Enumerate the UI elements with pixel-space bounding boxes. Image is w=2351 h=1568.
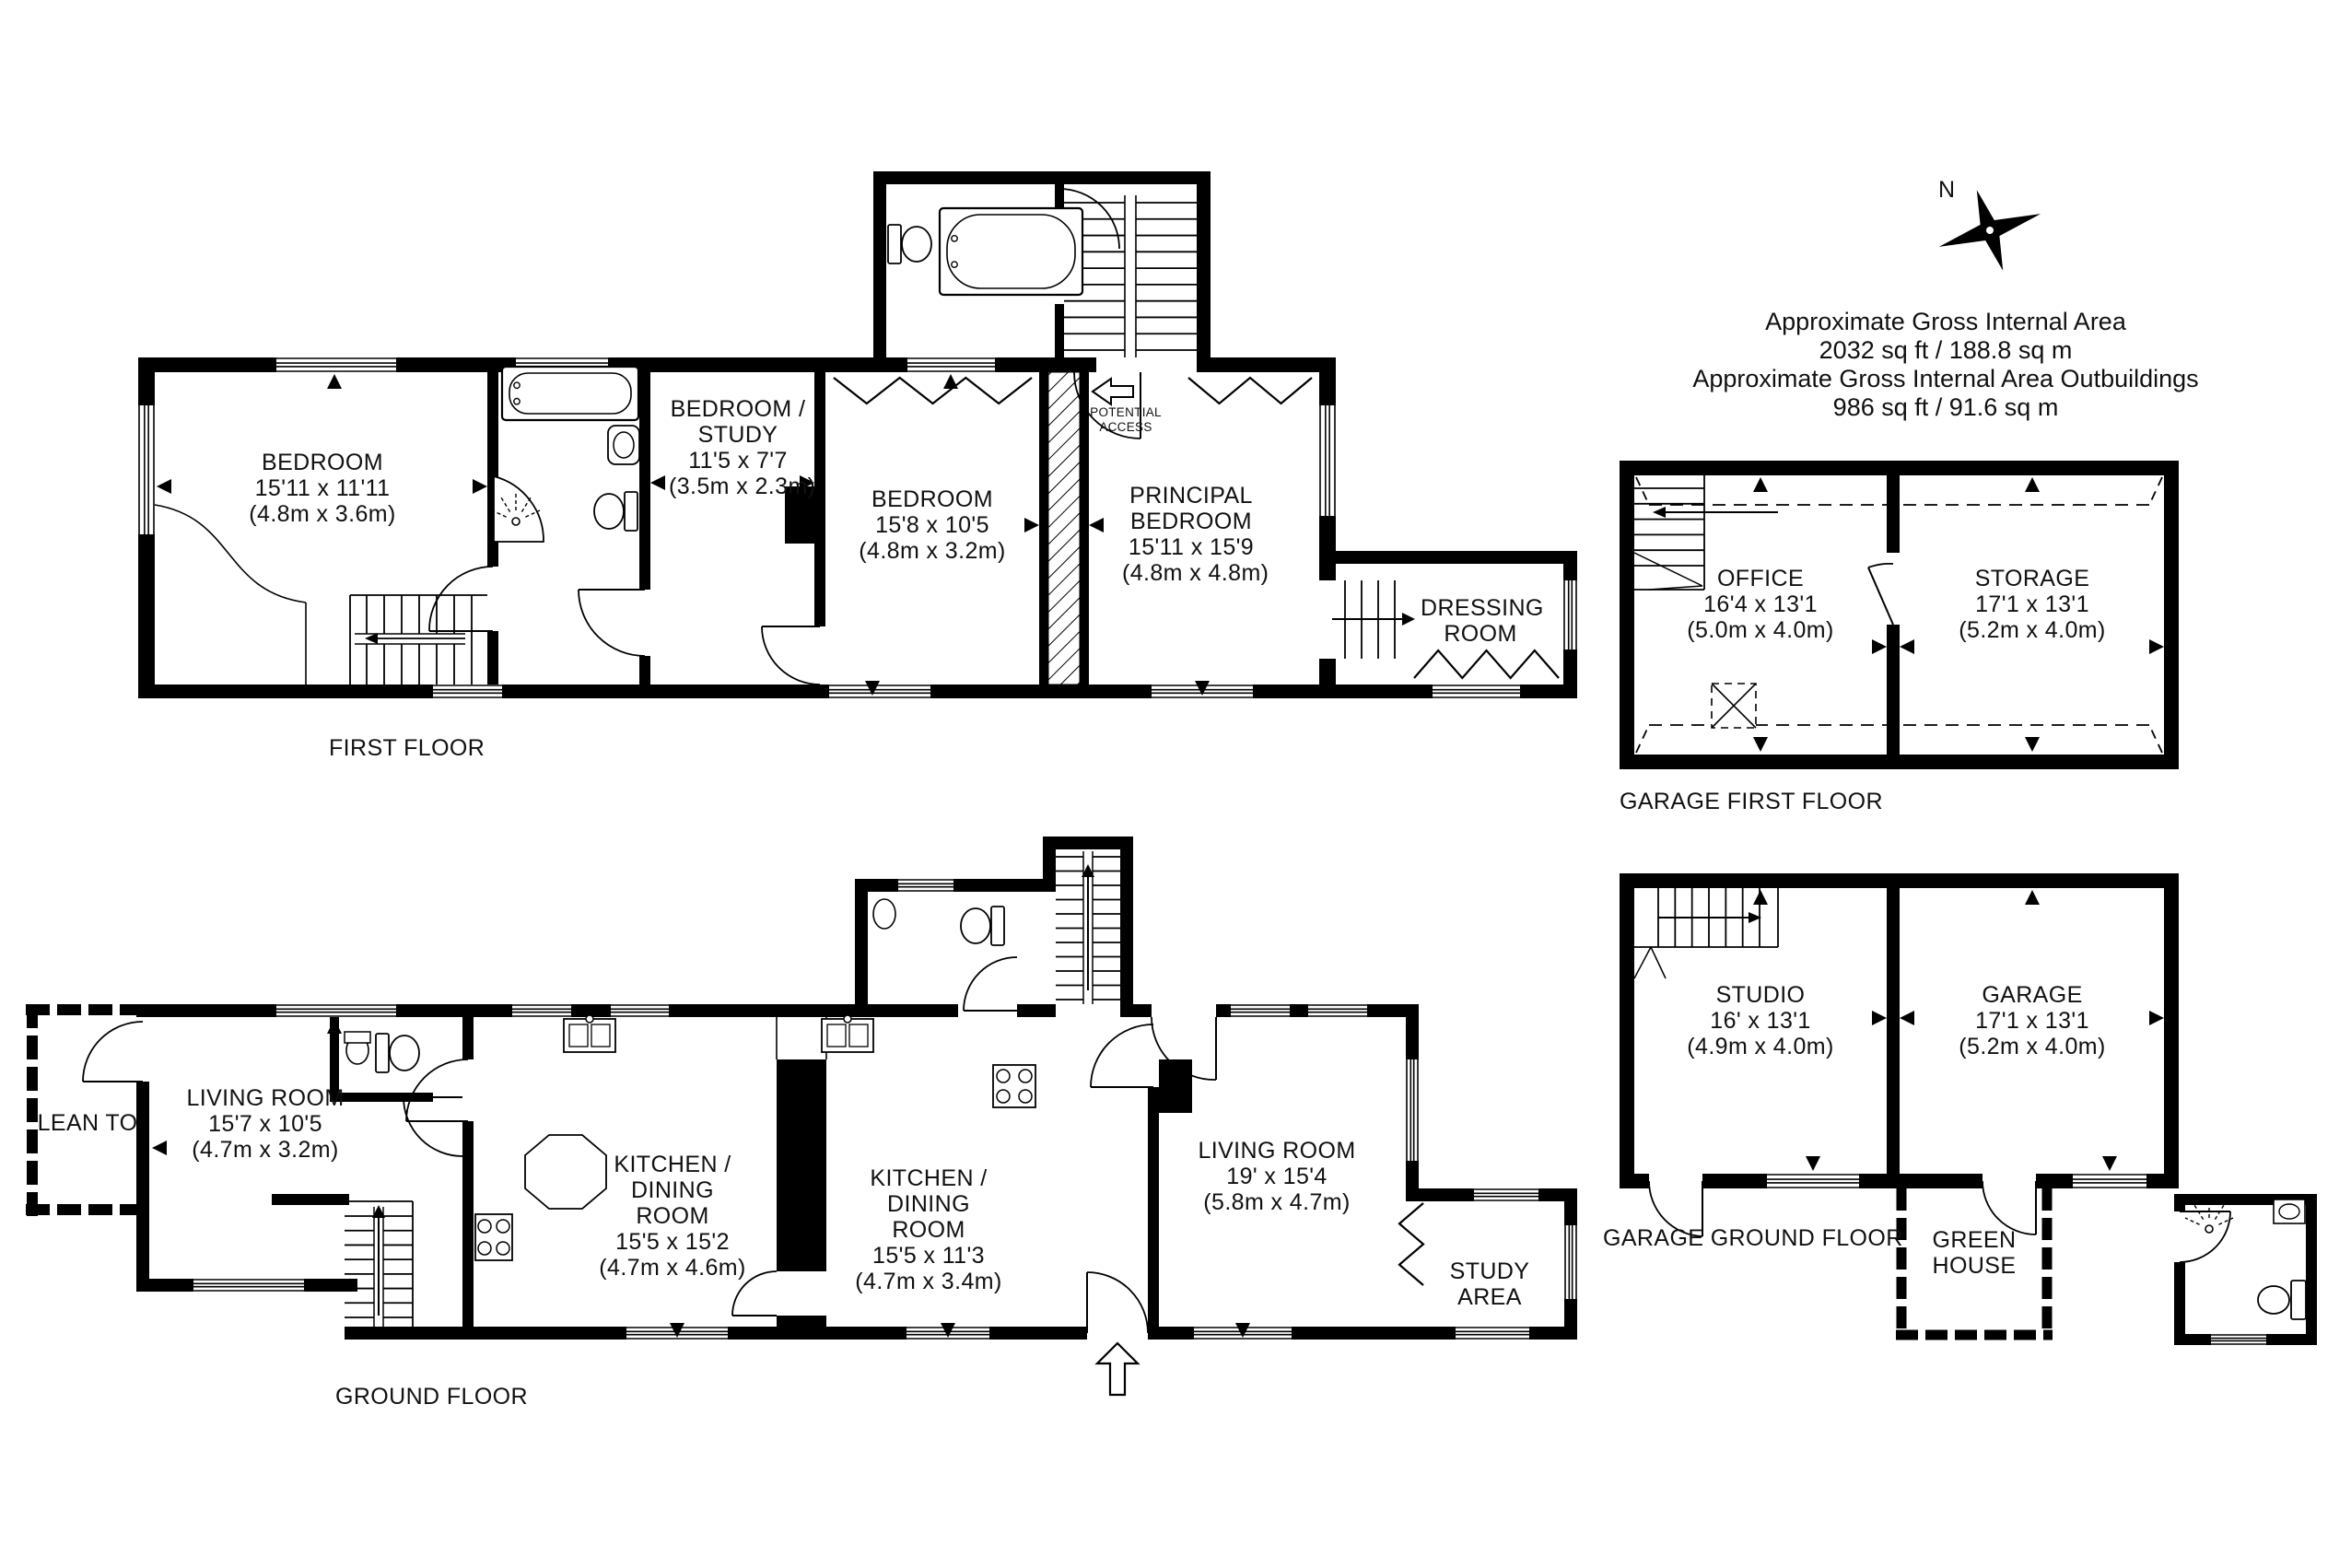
ground-floor-stairs: [345, 1201, 413, 1327]
room-label-kitchen-dining-2: KITCHEN / DINING ROOM 15'5 x 11'3 (4.7m …: [848, 1165, 1010, 1294]
room-label-living-room-2: LIVING ROOM 19' x 15'4 (5.8m x 4.7m): [1185, 1138, 1369, 1215]
room-label-storage: STORAGE 17'1 x 13'1 (5.2m x 4.0m): [1940, 566, 2124, 643]
ground-floor-wc: [345, 1032, 419, 1072]
area-summary: Approximate Gross Internal Area 2032 sq …: [1692, 308, 2198, 422]
area-line: 2032 sq ft / 188.8 sq m: [1692, 336, 2198, 365]
floorplan-page: N Approximate Gross Internal Area 2032 s…: [0, 0, 2351, 1568]
room-label-lean-to: LEAN TO: [32, 1110, 143, 1136]
room-label-bedroom-study: BEDROOM / STUDY 11'5 x 7'7 (3.5m x 2.3m): [669, 396, 807, 499]
first-floor-stairs: [350, 595, 487, 685]
area-line: Approximate Gross Internal Area: [1692, 308, 2198, 336]
caption-garage-first-floor: GARAGE FIRST FLOOR: [1620, 789, 1883, 815]
floorplan-drawing: [0, 0, 2351, 1568]
ground-floor-stair-block: [855, 837, 1133, 1017]
wc-outbuilding-plan: [2174, 1194, 2317, 1346]
caption-first-floor: FIRST FLOOR: [329, 735, 485, 762]
area-line: Approximate Gross Internal Area Outbuild…: [1692, 365, 2198, 393]
room-label-principal-bedroom: PRINCIPAL BEDROOM 15'11 x 15'9 (4.8m x 4…: [1122, 483, 1260, 586]
room-label-study-area: STUDY AREA: [1448, 1258, 1531, 1310]
room-label-office: OFFICE 16'4 x 13'1 (5.0m x 4.0m): [1668, 566, 1853, 643]
compass-north-label: N: [1938, 177, 1955, 204]
room-label-kitchen-dining-1: KITCHEN / DINING ROOM 15'5 x 15'2 (4.7m …: [592, 1152, 754, 1281]
room-label-dressing-room: DRESSING ROOM: [1421, 595, 1540, 647]
room-label-bedroom-1: BEDROOM 15'11 x 11'11 (4.8m x 3.6m): [221, 450, 424, 527]
room-label-bedroom-2: BEDROOM 15'8 x 10'5 (4.8m x 3.2m): [840, 486, 1024, 564]
area-line: 986 sq ft / 91.6 sq m: [1692, 393, 2198, 422]
caption-ground-floor: GROUND FLOOR: [335, 1384, 528, 1410]
room-label-green-house: GREEN HOUSE: [1928, 1227, 2020, 1279]
shower-room-fixtures: [492, 367, 639, 542]
potential-access-note: POTENTIAL ACCESS: [1074, 405, 1177, 435]
caption-garage-ground-floor: GARAGE GROUND FLOOR: [1603, 1225, 1903, 1252]
room-label-garage: GARAGE 17'1 x 13'1 (5.2m x 4.0m): [1940, 982, 2124, 1059]
room-label-studio: STUDIO 16' x 13'1 (4.9m x 4.0m): [1668, 982, 1853, 1059]
room-label-living-room-1: LIVING ROOM 15'7 x 10'5 (4.7m x 3.2m): [173, 1085, 357, 1163]
bathroom-fixtures-top: [888, 208, 1082, 295]
